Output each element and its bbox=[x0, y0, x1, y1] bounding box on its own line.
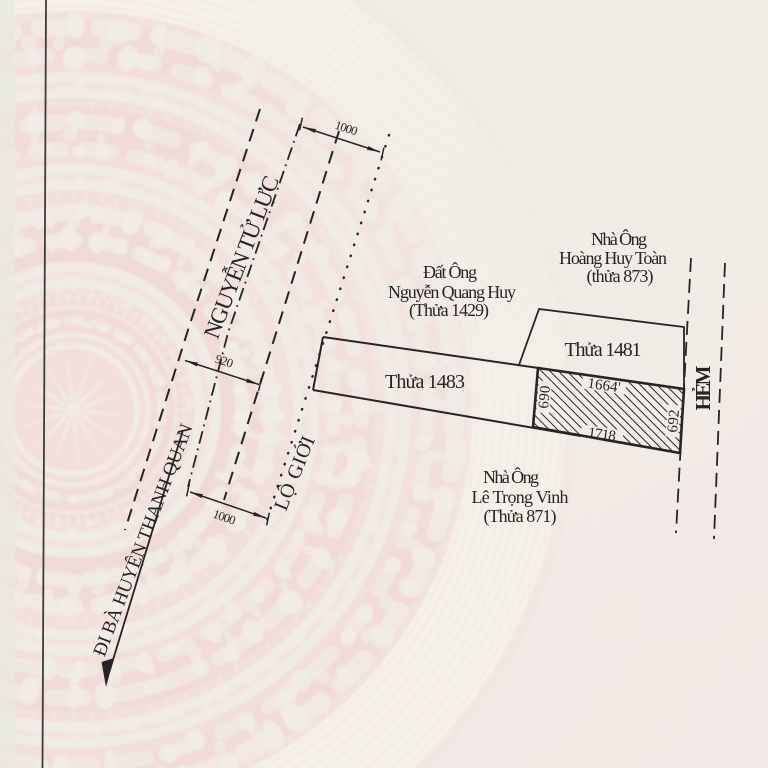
svg-text:Hoàng Huy Toàn: Hoàng Huy Toàn bbox=[559, 248, 667, 268]
svg-text:Thửa 1481: Thửa 1481 bbox=[565, 339, 642, 361]
svg-text:Lê Trọng Vinh: Lê Trọng Vinh bbox=[472, 487, 569, 507]
svg-text:(Thửa 1429): (Thửa 1429) bbox=[409, 300, 489, 321]
svg-text:Nguyễn Quang Huy: Nguyễn Quang Huy bbox=[388, 282, 516, 302]
svg-text:690: 690 bbox=[536, 385, 554, 409]
svg-text:(Thửa 871): (Thửa 871) bbox=[484, 506, 557, 527]
svg-text:HẺM: HẺM bbox=[691, 365, 715, 410]
svg-text:Thửa 1483: Thửa 1483 bbox=[385, 371, 465, 393]
svg-text:Nhà Ông: Nhà Ông bbox=[591, 228, 647, 249]
svg-text:Đất Ông: Đất Ông bbox=[423, 261, 477, 282]
svg-text:Nhà Ông: Nhà Ông bbox=[483, 466, 539, 487]
svg-text:(thửa 873): (thửa 873) bbox=[587, 266, 654, 287]
